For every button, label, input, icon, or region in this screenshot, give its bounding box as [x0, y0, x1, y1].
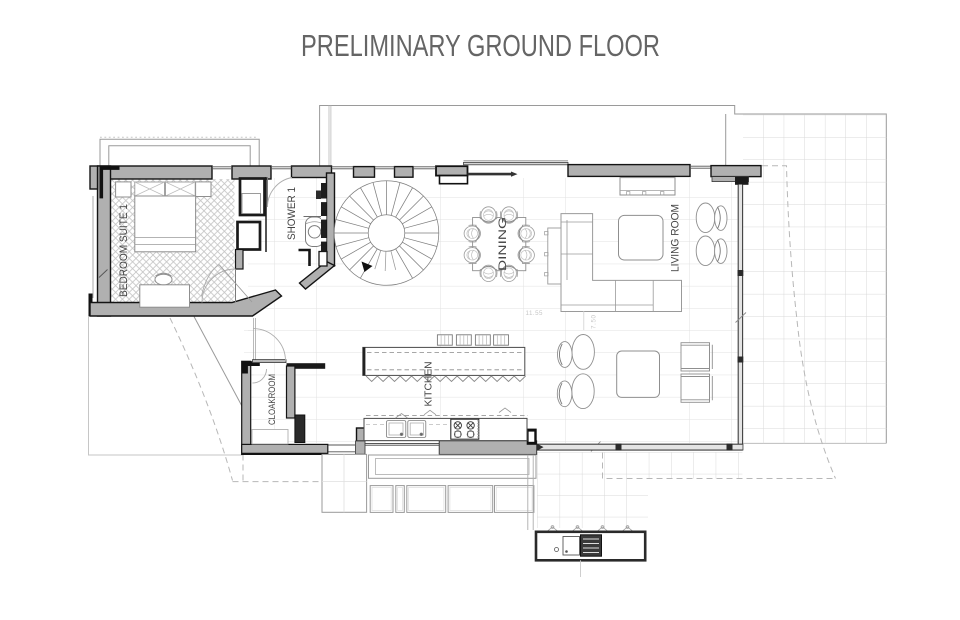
svg-text:SHOWER 1: SHOWER 1 — [286, 187, 298, 240]
svg-text:CLOAKROOM: CLOAKROOM — [267, 374, 277, 425]
svg-text:7.50: 7.50 — [591, 314, 598, 329]
svg-text:11.55: 11.55 — [526, 310, 544, 317]
svg-text:DINING: DINING — [497, 217, 509, 271]
svg-text:BEDROOM SUITE 1: BEDROOM SUITE 1 — [118, 204, 130, 297]
svg-text:KITCHEN: KITCHEN — [424, 362, 435, 407]
svg-text:PRELIMINARY GROUND FLOOR: PRELIMINARY GROUND FLOOR — [301, 28, 660, 63]
svg-text:LIVING ROOM: LIVING ROOM — [670, 204, 682, 272]
